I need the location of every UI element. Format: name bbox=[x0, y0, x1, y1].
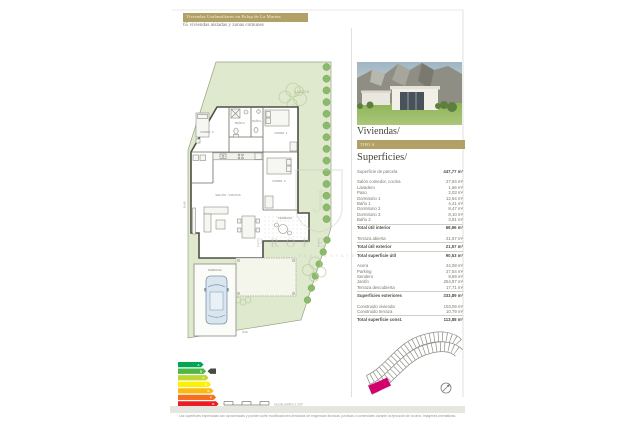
energy-bar-d: D bbox=[178, 382, 211, 387]
energy-bar-b: B bbox=[178, 369, 206, 374]
svg-text:F: F bbox=[210, 396, 212, 400]
surface-total-row: Total superficie const.113,88 m² bbox=[357, 315, 463, 322]
surface-label: Superficie de parcela bbox=[357, 169, 397, 174]
room-label-salon: SALÓN - COCINA bbox=[215, 192, 241, 197]
dim-bottom: 8,00 bbox=[242, 330, 248, 334]
surface-total-row: Superficies exteriores333,89 m² bbox=[357, 291, 463, 298]
energy-bar-c: C bbox=[178, 375, 209, 380]
energy-bar-f: F bbox=[178, 395, 216, 400]
surface-total-row: Total útil exterior21,57 m² bbox=[357, 242, 463, 249]
type-badge: TIPO A bbox=[357, 140, 465, 149]
parking-bay bbox=[194, 264, 236, 336]
room-label-parking: PARKING bbox=[208, 268, 222, 272]
energy-bar-e: E bbox=[178, 388, 214, 393]
footer-band bbox=[170, 406, 465, 413]
surface-row: Terraza descubierta17,71 m² bbox=[357, 285, 463, 290]
superficies-heading: Superficies/ bbox=[357, 152, 407, 163]
villa-photo bbox=[357, 62, 462, 125]
energy-rating-marker bbox=[208, 369, 217, 374]
site-plan bbox=[368, 337, 459, 393]
car-icon bbox=[204, 276, 228, 324]
room-label-terraza: TERRAZA bbox=[278, 216, 293, 220]
room-label-dorm2: DORM. 2 bbox=[273, 179, 286, 183]
watermark-initial: J bbox=[312, 183, 325, 220]
compass-icon bbox=[441, 383, 451, 393]
brochure-page: 16,40 8,00 DORM. 3 BAÑO 2 BAÑO 1 DORM. 1… bbox=[0, 0, 630, 423]
room-label-bano1: BAÑO 1 bbox=[252, 120, 262, 123]
energy-label: A B C D E F G bbox=[178, 362, 219, 407]
surface-row: Terraza abierta21,57 m² bbox=[357, 236, 463, 241]
page-title: Viviendas Unifamiliares en Polop de La M… bbox=[183, 13, 308, 22]
svg-text:E: E bbox=[207, 389, 209, 393]
surface-value: 447,77 m² bbox=[443, 169, 463, 174]
watermark-subtext: REAL ESTATE bbox=[298, 253, 357, 258]
viviendas-heading: Viviendas/ bbox=[357, 126, 400, 137]
room-label-dorm1: DORM. 1 bbox=[275, 131, 288, 135]
surface-row: Baño 23,81 m² bbox=[357, 217, 463, 222]
surface-row: Construido terraza10,79 m² bbox=[357, 309, 463, 314]
open-deck bbox=[236, 258, 296, 296]
surface-table: Superficie de parcela 447,77 m² Salón co… bbox=[357, 169, 463, 323]
surface-total-row: Total útil interior68,96 m² bbox=[357, 224, 463, 231]
floor-plan: 16,40 8,00 DORM. 3 BAÑO 2 BAÑO 1 DORM. 1… bbox=[182, 62, 331, 338]
graphics-layer: 16,40 8,00 DORM. 3 BAÑO 2 BAÑO 1 DORM. 1… bbox=[0, 0, 630, 423]
footer-disclaimer: Las superficies expresadas son aproximad… bbox=[170, 414, 465, 418]
room-label-dorm3: DORM. 3 bbox=[201, 130, 214, 134]
energy-bar-a: A bbox=[178, 362, 204, 367]
room-label-jardin: JARDÍN bbox=[294, 90, 309, 94]
watermark-text: PROPE bbox=[256, 235, 331, 250]
surface-total-row: Total superficie útil90,53 m² bbox=[357, 251, 463, 258]
page-subtitle: 65 viviendas aisladas y zonas comunes bbox=[183, 22, 264, 28]
dim-left: 16,40 bbox=[182, 201, 186, 208]
